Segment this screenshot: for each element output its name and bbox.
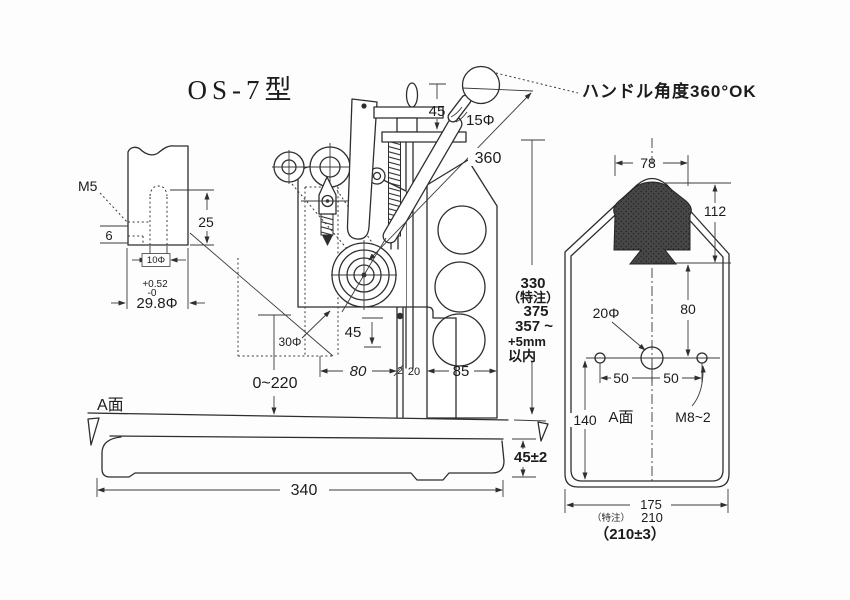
clamp-bolt-2 bbox=[397, 313, 403, 319]
work-range-dim: 0~220 bbox=[253, 375, 298, 392]
shank-dia-dim: 29.8Φ bbox=[136, 295, 177, 312]
a-surface-flag-right bbox=[538, 422, 548, 441]
hole-dia-dim: 10Φ bbox=[147, 255, 166, 266]
hole-offset-dim: 80 bbox=[680, 301, 696, 317]
a-surface-label: A面 bbox=[97, 397, 124, 414]
ball-dia-dim: 15Φ bbox=[466, 112, 495, 129]
height-357: 357 ~ bbox=[515, 318, 553, 335]
side-a-surface-label: A面 bbox=[608, 409, 633, 426]
pitch-right-dim: 50 bbox=[663, 370, 679, 386]
step-dim: 6 bbox=[105, 228, 112, 243]
base-depth-dim: 140 bbox=[573, 412, 597, 428]
drawing-title: OS-7型 bbox=[187, 75, 296, 105]
center-hole-dim: 20Φ bbox=[593, 305, 620, 321]
bolt-spec-label: M8~2 bbox=[675, 409, 711, 425]
height-within: 以内 bbox=[508, 348, 536, 364]
width-210-dim: 210 bbox=[641, 510, 663, 525]
a-surface-flag-left bbox=[88, 418, 99, 445]
handle-angle-note: ハンドル角度360°OK bbox=[582, 81, 757, 101]
head-height-dim: 112 bbox=[704, 203, 727, 219]
dim-2: 2 bbox=[397, 366, 403, 377]
dim-80: 80 bbox=[350, 363, 367, 380]
ram-gap-dim: 45 bbox=[345, 324, 362, 341]
width-tolerance-dim: （210±3） bbox=[594, 525, 666, 543]
os7-press-drawing: OS-7型 M5 25 6 10Φ +0.52 -0 29.8Φ bbox=[0, 0, 850, 600]
height-plus5: +5mm bbox=[508, 334, 546, 349]
adjust-knob bbox=[407, 83, 418, 107]
thread-label: M5 bbox=[78, 178, 98, 194]
top-width-dim: 78 bbox=[640, 155, 656, 171]
width-note: （特注） bbox=[592, 512, 630, 524]
side-view: 78 112 80 20Φ 50 50 140 A面 M8~2 175 （特注）… bbox=[565, 138, 731, 543]
dim-85: 85 bbox=[453, 363, 470, 380]
shank-outline bbox=[128, 146, 188, 245]
technical-drawing-page: OS-7型 M5 25 6 10Φ +0.52 -0 29.8Φ bbox=[0, 0, 850, 600]
base-height-dim: 45±2 bbox=[514, 449, 547, 466]
base-body bbox=[102, 437, 504, 480]
lever-length-dim: 360 bbox=[475, 150, 502, 167]
ram-dia-dim: 30Φ bbox=[279, 335, 302, 349]
handle-ball bbox=[463, 67, 500, 104]
dim-20: 20 bbox=[408, 366, 420, 378]
cap-gap-dim: 45 bbox=[429, 103, 446, 120]
base-length-dim: 340 bbox=[291, 482, 318, 499]
depth-dim: 25 bbox=[198, 214, 214, 230]
m5-leader bbox=[100, 193, 128, 223]
pitch-left-dim: 50 bbox=[613, 370, 629, 386]
